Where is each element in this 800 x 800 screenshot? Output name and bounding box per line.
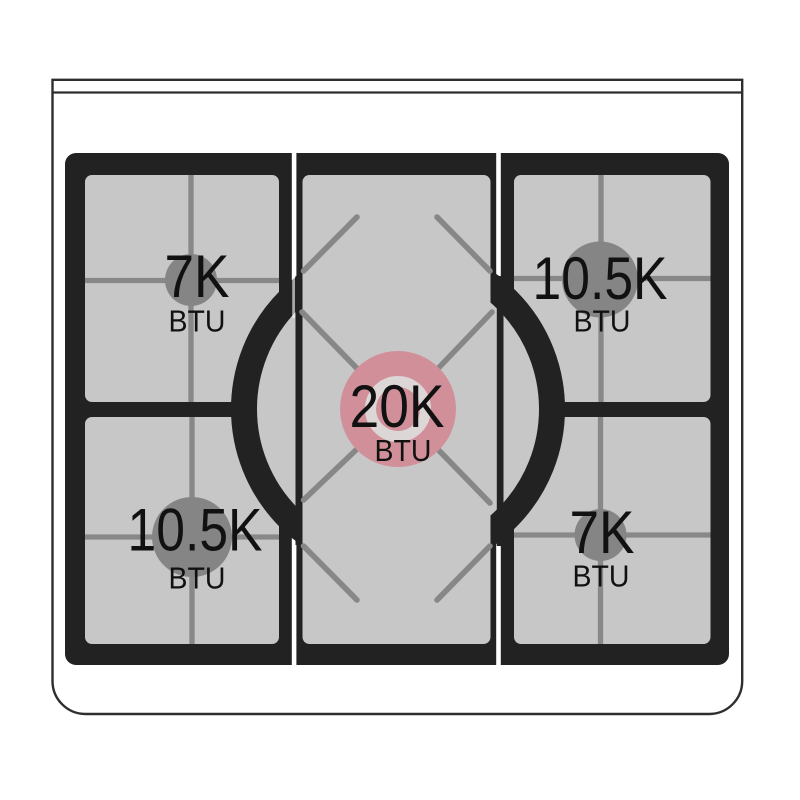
svg-text:BTU: BTU — [573, 559, 630, 594]
svg-text:10.5K: 10.5K — [533, 245, 668, 312]
svg-text:7K: 7K — [165, 243, 230, 310]
svg-text:BTU: BTU — [169, 304, 226, 339]
svg-text:BTU: BTU — [574, 304, 631, 339]
svg-text:10.5K: 10.5K — [128, 497, 263, 564]
svg-text:20K: 20K — [350, 373, 445, 440]
svg-text:7K: 7K — [570, 499, 635, 566]
svg-text:BTU: BTU — [375, 433, 432, 468]
svg-text:BTU: BTU — [169, 561, 226, 596]
